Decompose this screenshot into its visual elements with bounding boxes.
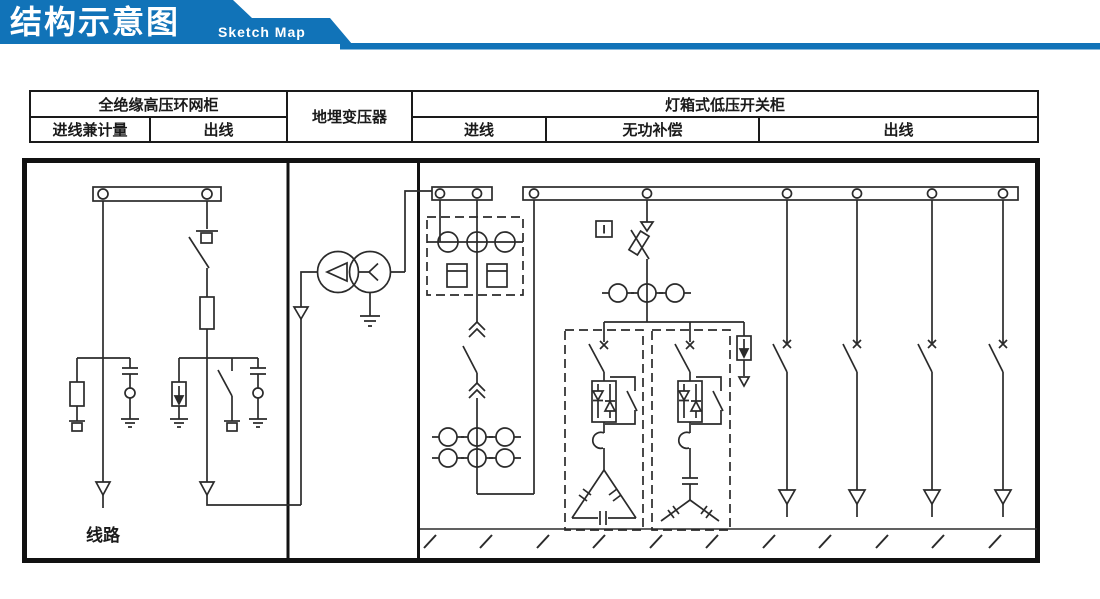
cabinet-header-table: 全绝缘高压环网柜 进线兼计量 出线 地埋变压器 灯箱式低压开关柜 进线 无功补偿… <box>29 90 1039 143</box>
delta-winding <box>327 263 347 281</box>
breaker-x <box>600 341 608 349</box>
earthing-switch <box>218 358 240 431</box>
bus-surge-arrester <box>737 336 751 386</box>
lv-incoming-metering <box>427 187 534 494</box>
outgoing-feeder <box>918 200 940 517</box>
load-break-switch-blade <box>189 237 209 268</box>
busbar-node <box>530 189 539 198</box>
delta-capacitors <box>572 470 636 518</box>
busbar-node <box>436 189 445 198</box>
busbar-node <box>98 189 108 199</box>
section-hv-ring-unit: 全绝缘高压环网柜 进线兼计量 出线 <box>31 92 288 141</box>
earth <box>360 316 380 326</box>
reactor <box>679 432 690 448</box>
hv-outgoing-feeder <box>170 201 301 505</box>
line-arrow <box>96 482 110 495</box>
section-buried-transformer: 地埋变压器 <box>288 92 413 141</box>
fuse <box>200 297 214 329</box>
busbar-node <box>643 189 652 198</box>
lv-main-busbar <box>523 187 1018 200</box>
wye-capacitors <box>661 500 719 521</box>
hv-ring-main-unit: 线路 <box>69 187 301 545</box>
ground-hatch <box>420 529 1037 548</box>
single-line-diagram: 线路 <box>22 158 1042 565</box>
lv-lead <box>391 191 433 272</box>
busbar-node <box>783 189 792 198</box>
busbar-node <box>473 189 482 198</box>
surge-arrester <box>170 358 188 427</box>
breaker-x <box>686 341 694 349</box>
capacitor-bank-delta <box>565 330 643 530</box>
wye-winding <box>358 264 378 281</box>
busbar-node <box>999 189 1008 198</box>
flow-arrow <box>641 222 653 231</box>
charged-indicator-earth <box>121 358 139 427</box>
section-title: 地埋变压器 <box>288 92 411 141</box>
switch-contact <box>201 233 212 243</box>
col-incoming-metering: 进线兼计量 <box>31 118 151 141</box>
busbar-node <box>202 189 212 199</box>
outgoing-feeder <box>989 200 1011 517</box>
charged-indicator-earth <box>249 358 267 427</box>
contact-terminal <box>69 421 85 431</box>
compensation-feeder: I <box>596 200 744 342</box>
transformer-primary <box>318 252 359 293</box>
hv-incoming-feeder <box>69 201 139 508</box>
sketch-map-page: { "banner": { "title_cn": "结构示意图", "titl… <box>0 0 1100 599</box>
outgoing-feeder <box>773 200 795 517</box>
drawout-breaker <box>463 322 485 398</box>
section-title: 灯箱式低压开关柜 <box>413 92 1037 118</box>
page-subtitle: Sketch Map <box>218 24 306 40</box>
section-lv-switchgear: 灯箱式低压开关柜 进线 无功补偿 出线 <box>413 92 1037 141</box>
flow-arrow <box>294 307 308 319</box>
busbar-node <box>928 189 937 198</box>
col-reactive-compensation: 无功补偿 <box>547 118 760 141</box>
banner-strip <box>340 43 1100 50</box>
reactor <box>593 432 604 448</box>
section-title: 全绝缘高压环网柜 <box>31 92 286 118</box>
buried-transformer <box>294 191 432 505</box>
capacitor <box>682 478 698 500</box>
energy-meter <box>447 264 467 287</box>
diagram-border <box>25 161 1038 561</box>
col-lv-incoming: 进线 <box>413 118 547 141</box>
voltage-transformer <box>70 382 84 406</box>
line-label: 线路 <box>86 525 121 545</box>
capacitor-bank-wye <box>652 330 730 530</box>
col-hv-outgoing: 出线 <box>151 118 286 141</box>
indicator-label: I <box>602 223 605 237</box>
energy-meter <box>487 264 507 287</box>
riser-to-main-bus <box>477 200 534 494</box>
lv-switchgear: I <box>420 187 1037 548</box>
outgoing-feeder <box>843 200 865 517</box>
page-title: 结构示意图 <box>10 4 180 40</box>
metering-box <box>427 217 523 295</box>
col-lv-outgoing: 出线 <box>760 118 1037 141</box>
busbar-node <box>853 189 862 198</box>
line-arrow <box>200 482 214 495</box>
